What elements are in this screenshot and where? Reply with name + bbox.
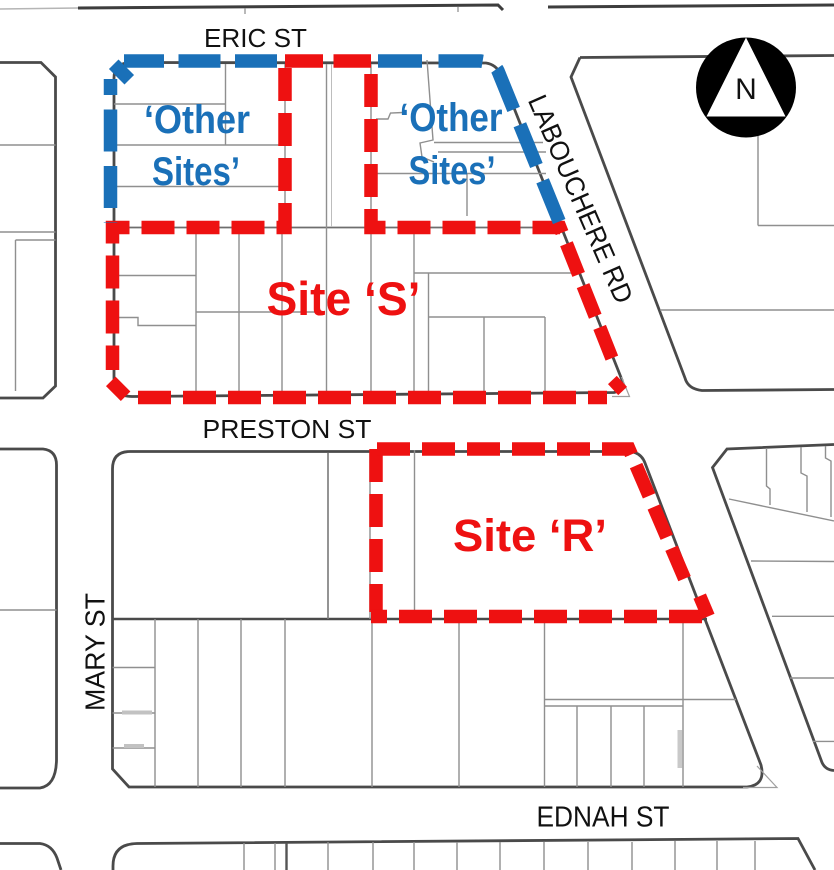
svg-text:PRESTON ST: PRESTON ST bbox=[203, 414, 372, 444]
svg-text:N: N bbox=[735, 73, 757, 106]
svg-text:Sites’: Sites’ bbox=[409, 149, 496, 193]
svg-text:Site ‘S’: Site ‘S’ bbox=[267, 272, 421, 325]
svg-text:EDNAH ST: EDNAH ST bbox=[537, 802, 670, 834]
svg-text:ERIC ST: ERIC ST bbox=[204, 23, 307, 53]
svg-text:‘Other: ‘Other bbox=[144, 98, 250, 142]
svg-text:Site ‘R’: Site ‘R’ bbox=[453, 510, 607, 561]
svg-text:MARY ST: MARY ST bbox=[80, 593, 111, 711]
svg-text:‘Other: ‘Other bbox=[400, 96, 503, 140]
svg-text:Sites’: Sites’ bbox=[152, 150, 240, 194]
